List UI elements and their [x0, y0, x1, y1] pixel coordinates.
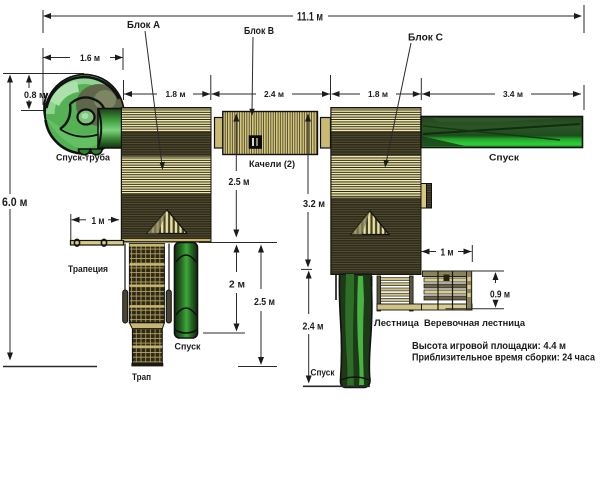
- svg-text:Блок A: Блок A: [127, 20, 160, 31]
- svg-text:Веревочная лестница: Веревочная лестница: [424, 318, 526, 329]
- svg-text:2.4 м: 2.4 м: [303, 322, 324, 333]
- svg-text:1 м: 1 м: [92, 216, 105, 227]
- svg-text:1 м: 1 м: [441, 248, 454, 259]
- svg-text:Блок C: Блок C: [408, 33, 443, 44]
- svg-text:2.5 м: 2.5 м: [254, 297, 275, 308]
- svg-text:Лестница: Лестница: [374, 318, 420, 329]
- svg-text:2.4 м: 2.4 м: [264, 89, 284, 99]
- svg-text:0.8 м: 0.8 м: [24, 90, 46, 100]
- svg-text:Трап: Трап: [132, 372, 151, 383]
- svg-text:1.8 м: 1.8 м: [166, 89, 186, 99]
- svg-text:Трапеция: Трапеция: [68, 264, 108, 275]
- svg-text:0.9 м: 0.9 м: [490, 290, 510, 301]
- svg-text:1.6 м: 1.6 м: [80, 53, 100, 63]
- svg-text:Спуск-труба: Спуск-труба: [56, 153, 111, 163]
- svg-text:Спуск: Спуск: [311, 368, 335, 379]
- svg-text:Приблизительное время сборки:: Приблизительное время сборки: 24 часа: [412, 352, 595, 364]
- svg-text:2.5 м: 2.5 м: [229, 177, 250, 188]
- svg-text:1.8 м: 1.8 м: [368, 89, 388, 99]
- svg-text:6.0 м: 6.0 м: [2, 195, 27, 209]
- svg-text:Высота игровой площадки: 4.4: Высота игровой площадки: 4.4 м: [412, 341, 566, 352]
- svg-text:Спуск: Спуск: [175, 342, 201, 353]
- svg-text:3.2 м: 3.2 м: [303, 199, 325, 210]
- svg-text:Спуск: Спуск: [489, 153, 519, 164]
- svg-text:Качели (2): Качели (2): [249, 159, 295, 170]
- svg-text:2 м: 2 м: [229, 280, 245, 291]
- svg-text:3.4 м: 3.4 м: [503, 89, 523, 99]
- svg-text:11.1 м: 11.1 м: [297, 10, 323, 24]
- svg-text:Блок B: Блок B: [244, 26, 274, 37]
